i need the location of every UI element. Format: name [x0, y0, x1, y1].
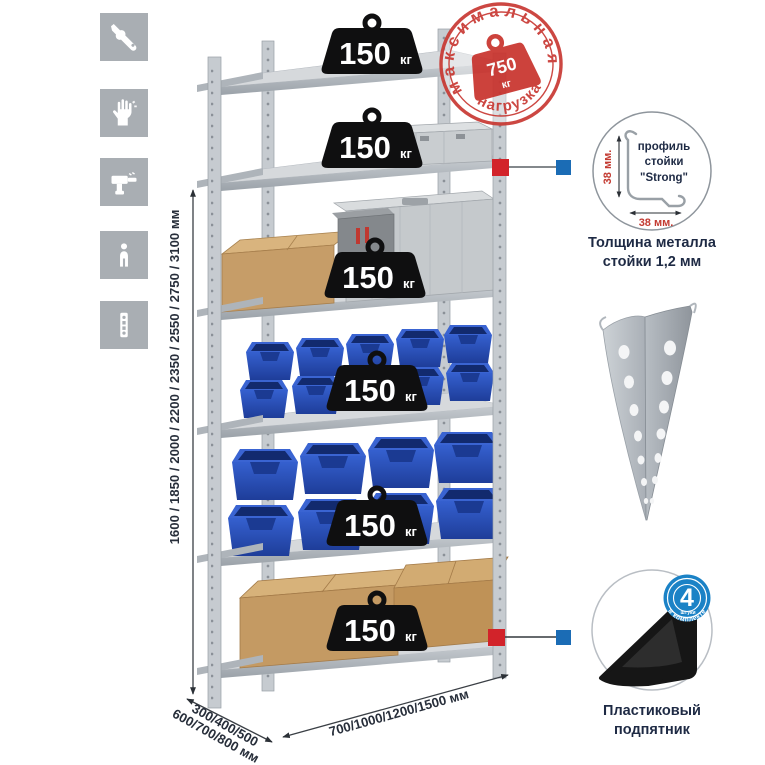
- width-dimension-label: 700/1000/1200/1500 мм: [327, 686, 470, 739]
- caption-line: Толщина металла: [567, 234, 737, 253]
- profile-dim-bottom: 38 мм.: [639, 217, 674, 229]
- shelf-weight-2: 150кг: [322, 110, 423, 168]
- metal-thickness-caption: Толщина металла стойки 1,2 мм: [567, 234, 737, 272]
- svg-text:кг: кг: [405, 629, 418, 644]
- width-dimension: 700/1000/1200/1500 мм: [283, 675, 508, 739]
- svg-text:кг: кг: [405, 524, 418, 539]
- post-profile-detail: 38 мм. 38 мм. профиль стойки "Strong": [593, 112, 711, 230]
- product-infographic: { "colors": { "accent_red": "#c93a34", "…: [0, 0, 765, 765]
- svg-text:150: 150: [342, 260, 394, 295]
- callout-blue-square: [556, 160, 571, 175]
- badge-word: штуки: [680, 610, 695, 616]
- rack-illustration: 1600 / 1850 / 2000 / 2200 / 2350 / 2550 …: [0, 0, 765, 765]
- upright-post-image: [600, 304, 696, 520]
- profile-label: "Strong": [640, 172, 688, 184]
- profile-label: профиль: [638, 141, 691, 153]
- callout-bottom: [488, 629, 571, 646]
- svg-text:кг: кг: [400, 146, 413, 161]
- caption-line: подпятник: [567, 721, 737, 740]
- height-dimension-label: 1600 / 1850 / 2000 / 2200 / 2350 / 2550 …: [167, 210, 182, 545]
- svg-text:кг: кг: [403, 276, 416, 291]
- svg-text:150: 150: [339, 36, 391, 71]
- caption-line: Пластиковый: [567, 702, 737, 721]
- shelf-weight-1: 150кг: [322, 16, 423, 74]
- plastic-foot-detail: 4 штуки в комплекте: [592, 570, 712, 690]
- svg-text:150: 150: [344, 508, 396, 543]
- stage: 1600 / 1850 / 2000 / 2200 / 2350 / 2550 …: [0, 0, 765, 765]
- included-count-badge: 4 штуки в комплекте: [664, 575, 711, 624]
- height-dimension: 1600 / 1850 / 2000 / 2200 / 2350 / 2550 …: [167, 190, 193, 694]
- badge-number: 4: [680, 584, 694, 612]
- callout-red-square: [488, 629, 505, 646]
- caption-line: стойки 1,2 мм: [567, 253, 737, 272]
- svg-text:150: 150: [344, 613, 396, 648]
- svg-text:150: 150: [339, 130, 391, 165]
- profile-dim-left: 38 мм.: [602, 150, 614, 185]
- svg-text:кг: кг: [405, 389, 418, 404]
- callout-top: [492, 159, 571, 176]
- svg-text:150: 150: [344, 373, 396, 408]
- profile-label: стойки: [645, 156, 684, 168]
- callout-blue-square: [556, 630, 571, 645]
- plastic-foot-caption: Пластиковый подпятник: [567, 702, 737, 740]
- svg-text:кг: кг: [400, 52, 413, 67]
- callout-red-square: [492, 159, 509, 176]
